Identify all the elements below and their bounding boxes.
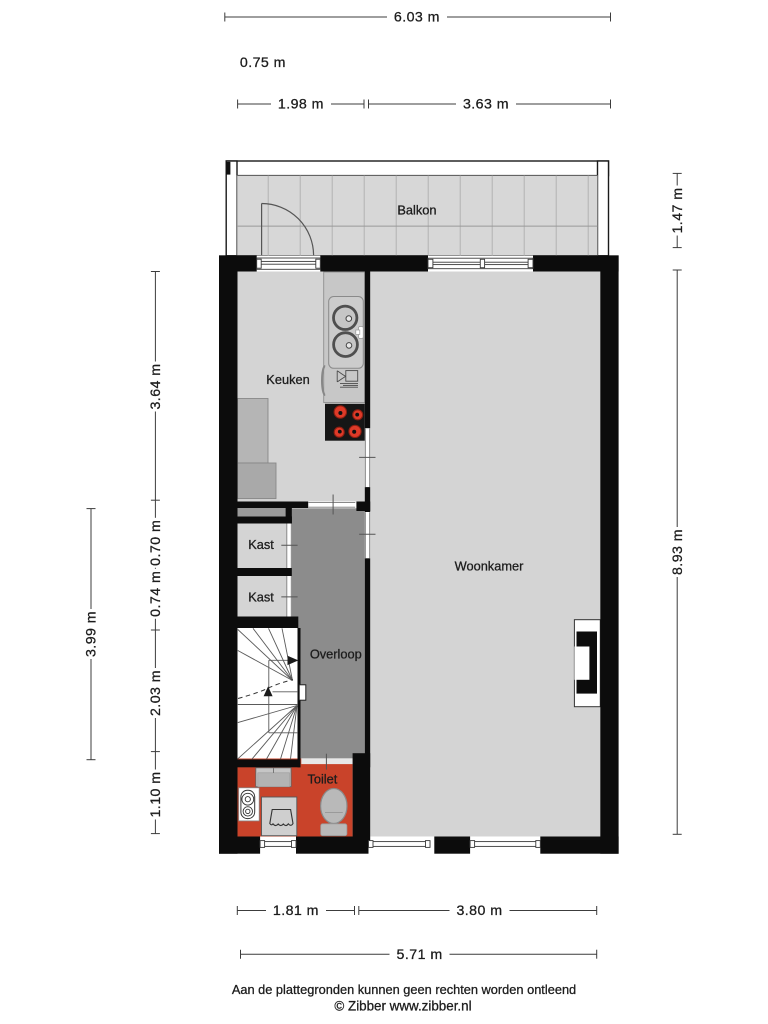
svg-text:Balkon: Balkon xyxy=(397,203,436,218)
svg-text:Overloop: Overloop xyxy=(310,647,362,662)
svg-text:0.75 m: 0.75 m xyxy=(240,55,286,71)
svg-text:Toilet: Toilet xyxy=(307,772,337,787)
svg-text:3.99 m: 3.99 m xyxy=(84,611,100,657)
svg-text:Aan de plattegronden kunnen ge: Aan de plattegronden kunnen geen rechten… xyxy=(232,982,576,997)
svg-text:Woonkamer: Woonkamer xyxy=(455,559,524,574)
svg-text:Keuken: Keuken xyxy=(266,372,309,387)
svg-text:8.93 m: 8.93 m xyxy=(670,529,686,575)
svg-text:Kast: Kast xyxy=(248,590,274,605)
svg-text:Kast: Kast xyxy=(248,537,274,552)
svg-text:0.70 m: 0.70 m xyxy=(148,520,164,566)
svg-text:2.03 m: 2.03 m xyxy=(148,670,164,716)
svg-text:6.03 m: 6.03 m xyxy=(394,10,440,26)
svg-text:3.64 m: 3.64 m xyxy=(148,363,164,409)
svg-text:1.47 m: 1.47 m xyxy=(670,187,686,233)
svg-text:5.71 m: 5.71 m xyxy=(397,947,443,963)
svg-text:3.80 m: 3.80 m xyxy=(456,903,502,919)
svg-text:© Zibber www.zibber.nl: © Zibber www.zibber.nl xyxy=(334,999,471,1014)
svg-text:1.98 m: 1.98 m xyxy=(278,97,324,113)
svg-text:3.63 m: 3.63 m xyxy=(463,97,509,113)
svg-text:0.74 m: 0.74 m xyxy=(148,571,164,617)
svg-text:1.10 m: 1.10 m xyxy=(148,771,164,817)
svg-text:1.81 m: 1.81 m xyxy=(273,903,319,919)
